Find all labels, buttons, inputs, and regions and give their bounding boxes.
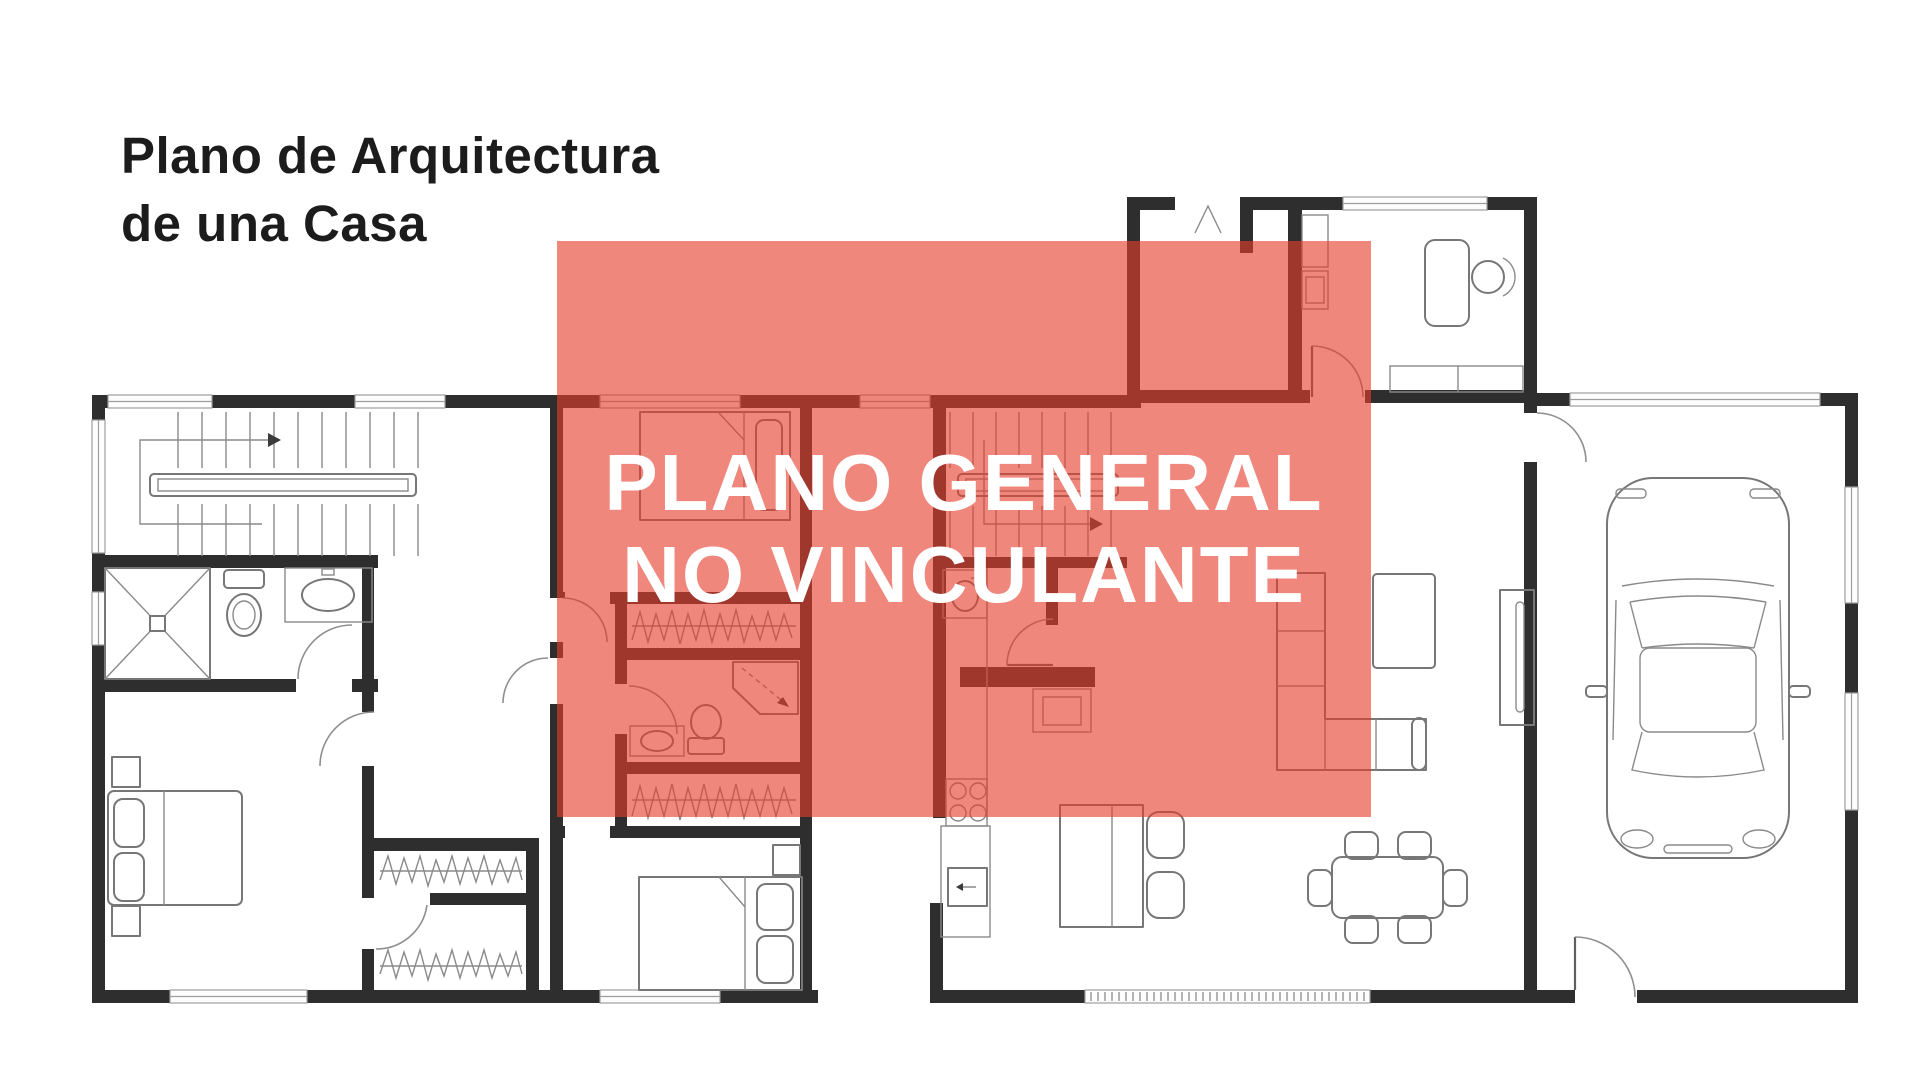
- page-title: Plano de Arquitectura de una Casa: [121, 122, 660, 258]
- nightstand: [773, 845, 800, 875]
- bed: [639, 877, 802, 990]
- chair: [1345, 832, 1378, 859]
- window: [1343, 197, 1487, 210]
- chair: [1398, 916, 1431, 943]
- kitchen-island: [1060, 805, 1143, 927]
- window: [170, 990, 307, 1003]
- toilet: [224, 570, 264, 636]
- chair: [1398, 832, 1431, 859]
- shower: [105, 568, 210, 679]
- chair: [1345, 916, 1378, 943]
- closets-left: [380, 856, 522, 980]
- closet-clothes-rail: [380, 950, 522, 980]
- nightstand: [112, 757, 140, 787]
- window: [1845, 487, 1858, 603]
- study: [1390, 240, 1523, 392]
- bathroom-left: [105, 568, 372, 679]
- closet-clothes-rail: [380, 856, 522, 886]
- bar-stool: [1147, 872, 1184, 918]
- coffee-table: [1373, 574, 1435, 668]
- dining-table: [1332, 857, 1443, 918]
- staircase-left: [140, 412, 418, 556]
- pillow: [114, 853, 144, 901]
- side-mirror: [1789, 686, 1810, 697]
- window: [600, 990, 720, 1003]
- office-chair: [1472, 258, 1515, 296]
- page-title-line-2: de una Casa: [121, 190, 660, 258]
- desk: [1425, 240, 1469, 326]
- window: [92, 420, 105, 553]
- bedroom-center-bottom: [639, 845, 802, 990]
- pillow: [757, 936, 793, 983]
- window: [108, 395, 212, 408]
- watermark-overlay: PLANO GENERAL NO VINCULANTE: [557, 241, 1371, 817]
- side-mirror: [1586, 686, 1607, 697]
- page-title-line-1: Plano de Arquitectura: [121, 122, 660, 190]
- refrigerator: [948, 868, 987, 906]
- pillow: [114, 799, 144, 847]
- chair: [1308, 870, 1332, 906]
- window: [92, 592, 105, 645]
- window: [355, 395, 445, 408]
- cabinet-row: [1390, 366, 1523, 392]
- chair: [1443, 870, 1467, 906]
- dining-room: [1308, 832, 1467, 943]
- pillow: [757, 884, 793, 930]
- nightstand: [112, 906, 140, 936]
- bedroom-left: [108, 757, 242, 936]
- watermark-line-1: PLANO GENERAL: [604, 437, 1323, 529]
- bar-stool: [1147, 812, 1184, 858]
- sliding-door: [1085, 990, 1370, 1003]
- sink: [285, 568, 372, 622]
- window: [1570, 393, 1820, 406]
- car-top-view: [1586, 478, 1810, 858]
- window: [1845, 693, 1858, 810]
- garage: [1586, 478, 1810, 858]
- floor-plan-page: PLANO GENERAL NO VINCULANTE Plano de Arq…: [0, 0, 1920, 1080]
- watermark-line-2: NO VINCULANTE: [622, 529, 1306, 621]
